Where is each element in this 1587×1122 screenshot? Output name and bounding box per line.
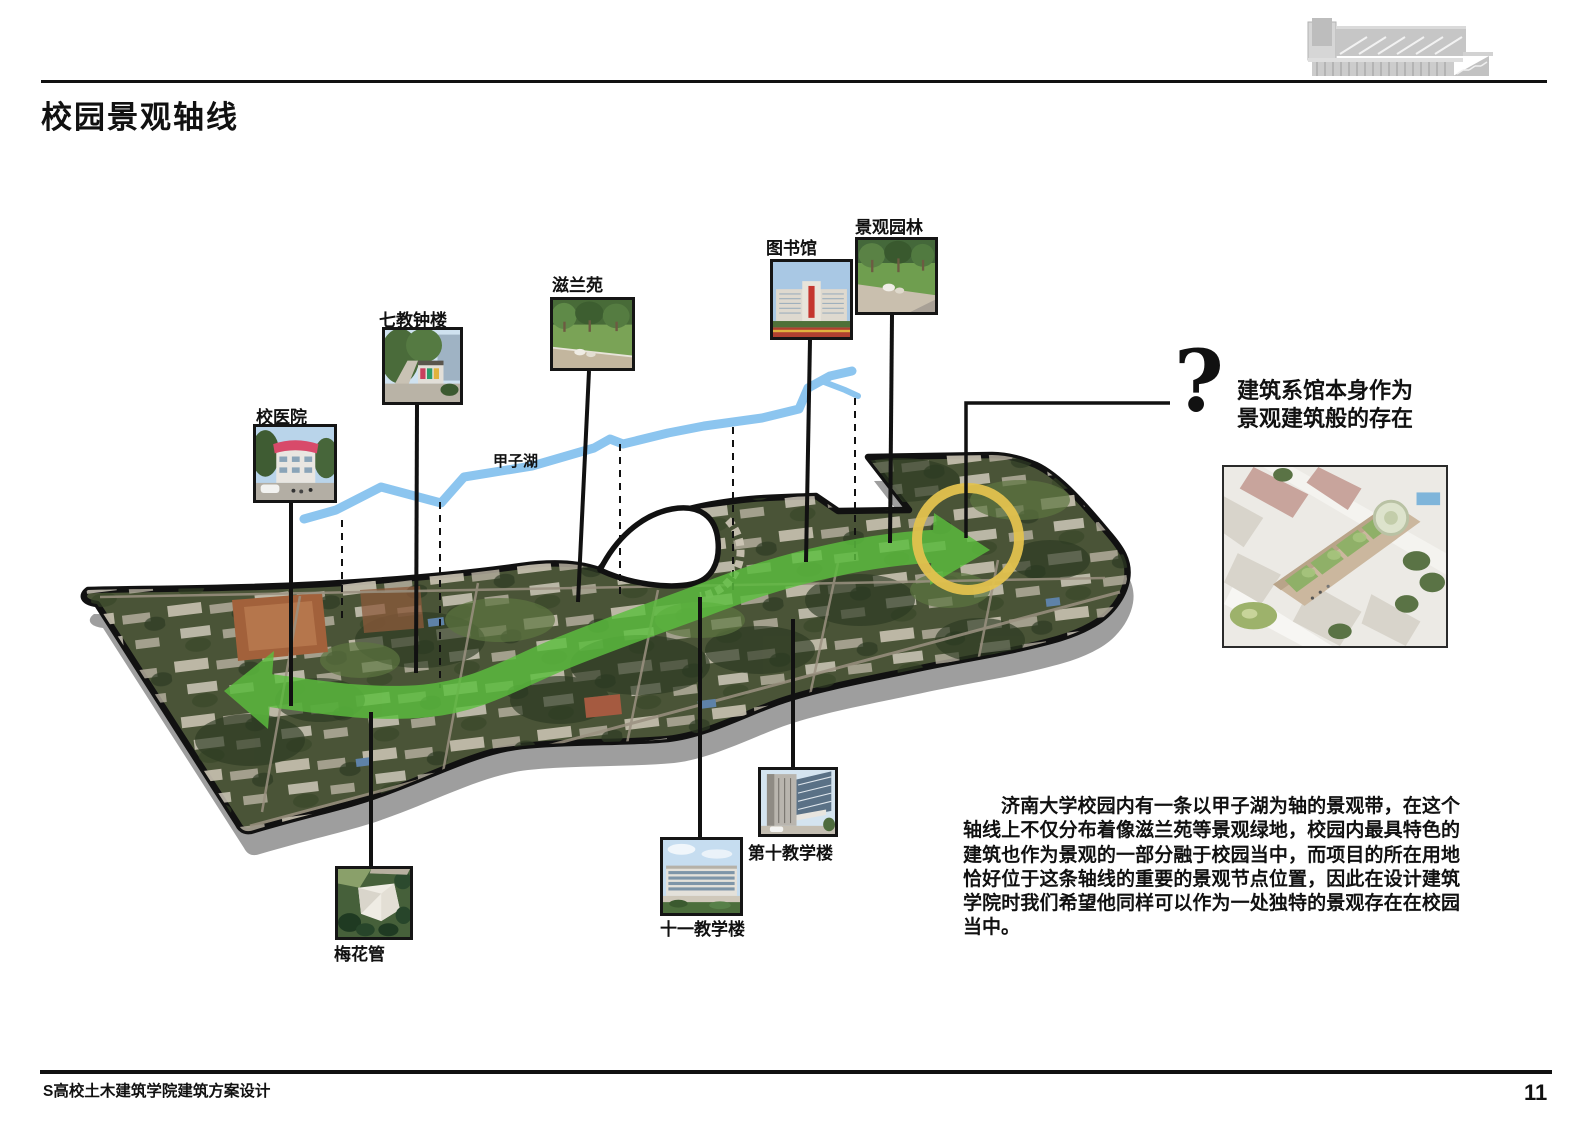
photo-garden	[855, 237, 938, 315]
description-paragraph: 济南大学校园内有一条以甲子湖为轴的景观带，在这个轴线上不仅分布着像滋兰苑等景观绿…	[963, 795, 1460, 941]
photo-meihua	[335, 866, 413, 940]
question-mark: ?	[1174, 340, 1224, 425]
photo-library	[770, 259, 853, 340]
label-zilan: 滋兰苑	[552, 271, 603, 296]
page-number: 11	[1524, 1080, 1547, 1106]
map-bay-notch	[600, 508, 718, 586]
footer-project-title: S高校土木建筑学院建筑方案设计	[43, 1079, 270, 1101]
photo-hospital	[253, 424, 337, 503]
callout-line-garden	[890, 315, 892, 543]
slide: 校园景观轴线	[0, 0, 1587, 1122]
photo-teaching11	[660, 837, 743, 916]
label-garden: 景观园林	[855, 213, 923, 238]
lake-label: 甲子湖	[493, 450, 538, 471]
annotation-line-1: 建筑系馆本身作为	[1237, 377, 1413, 405]
annotation-line-2: 景观建筑般的存在	[1237, 405, 1413, 433]
photo-clocktower	[382, 327, 463, 405]
callout-line-clocktower	[416, 405, 417, 673]
label-meihua: 梅花管	[334, 940, 385, 965]
design-rendering	[1222, 465, 1448, 648]
photo-zilan	[550, 297, 635, 371]
photo-teaching10	[758, 767, 838, 837]
annotation-text: 建筑系馆本身作为 景观建筑般的存在	[1237, 377, 1413, 433]
river-fork	[824, 382, 858, 396]
label-library: 图书馆	[766, 234, 817, 259]
label-teaching10: 第十教学楼	[748, 839, 833, 864]
footer-rule	[40, 1070, 1552, 1074]
label-teaching11: 十一教学楼	[660, 915, 745, 940]
